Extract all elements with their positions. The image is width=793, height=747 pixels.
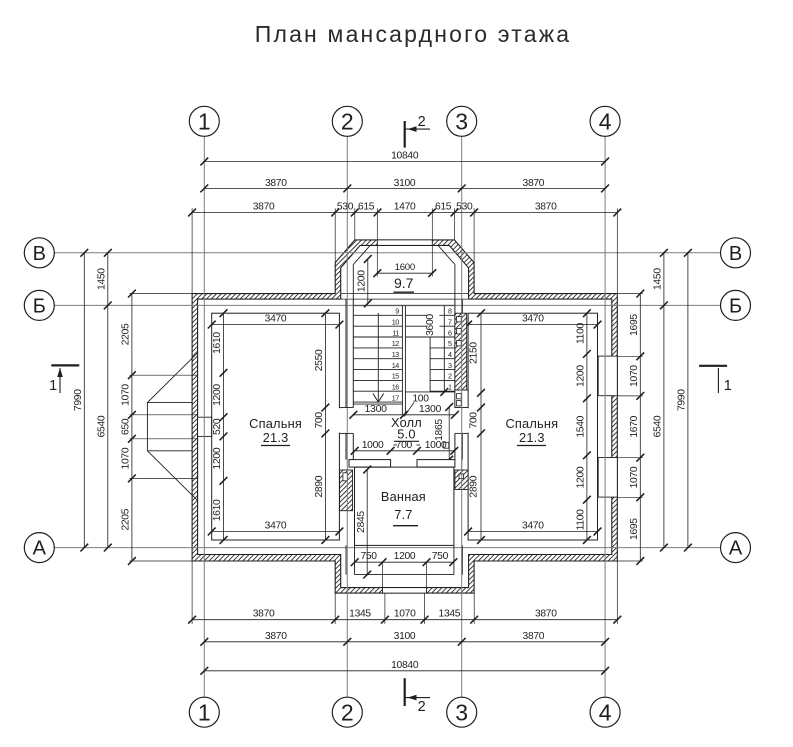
svg-text:100: 100 xyxy=(412,394,429,405)
svg-text:4: 4 xyxy=(599,699,612,725)
svg-text:1070: 1070 xyxy=(121,384,132,406)
svg-text:3870: 3870 xyxy=(535,609,557,620)
svg-text:А: А xyxy=(33,538,47,560)
svg-text:1670: 1670 xyxy=(629,415,640,437)
svg-text:3870: 3870 xyxy=(523,178,545,189)
svg-text:12: 12 xyxy=(392,339,399,348)
svg-text:Спальня: Спальня xyxy=(505,416,558,431)
svg-text:1345: 1345 xyxy=(439,609,461,620)
svg-text:1200: 1200 xyxy=(212,447,223,469)
svg-text:1300: 1300 xyxy=(419,403,442,415)
svg-text:2205: 2205 xyxy=(121,508,132,530)
svg-text:3470: 3470 xyxy=(522,314,544,325)
svg-text:1200: 1200 xyxy=(394,551,416,562)
svg-text:Спальня: Спальня xyxy=(249,416,302,431)
svg-text:8: 8 xyxy=(448,307,452,316)
svg-text:1200: 1200 xyxy=(576,466,587,488)
svg-text:2: 2 xyxy=(341,109,354,135)
svg-text:1695: 1695 xyxy=(629,518,640,540)
svg-text:9: 9 xyxy=(395,307,399,316)
svg-text:7990: 7990 xyxy=(677,389,688,411)
svg-text:2205: 2205 xyxy=(121,323,132,345)
svg-text:750: 750 xyxy=(360,551,377,562)
svg-text:1000: 1000 xyxy=(362,440,384,451)
svg-text:1100: 1100 xyxy=(576,509,587,531)
svg-text:1600: 1600 xyxy=(395,262,415,273)
svg-text:9.7: 9.7 xyxy=(394,275,414,291)
svg-text:700: 700 xyxy=(396,440,413,451)
svg-text:13: 13 xyxy=(392,350,399,359)
svg-text:615: 615 xyxy=(435,202,452,213)
svg-text:530: 530 xyxy=(456,202,473,213)
svg-text:2: 2 xyxy=(341,699,354,725)
svg-text:1200: 1200 xyxy=(212,384,223,406)
svg-text:2: 2 xyxy=(418,699,426,715)
svg-text:3100: 3100 xyxy=(394,631,416,642)
svg-text:3470: 3470 xyxy=(265,521,287,532)
svg-text:1345: 1345 xyxy=(349,609,371,620)
svg-text:1450: 1450 xyxy=(653,268,664,290)
svg-text:2890: 2890 xyxy=(469,475,480,497)
svg-text:10840: 10840 xyxy=(391,151,419,162)
svg-text:1070: 1070 xyxy=(394,609,416,620)
svg-text:3870: 3870 xyxy=(265,178,287,189)
svg-text:6540: 6540 xyxy=(96,415,107,437)
svg-text:3870: 3870 xyxy=(253,609,275,620)
svg-text:Ванная: Ванная xyxy=(381,489,426,504)
svg-text:3870: 3870 xyxy=(523,631,545,642)
svg-text:5: 5 xyxy=(448,339,452,348)
svg-text:2: 2 xyxy=(448,372,452,381)
svg-text:3870: 3870 xyxy=(535,202,557,213)
svg-text:2150: 2150 xyxy=(469,342,480,364)
svg-text:3600: 3600 xyxy=(425,314,436,336)
svg-text:1300: 1300 xyxy=(365,403,388,415)
svg-text:1610: 1610 xyxy=(212,499,223,521)
svg-text:1540: 1540 xyxy=(576,415,587,437)
svg-text:1470: 1470 xyxy=(394,202,416,213)
svg-text:2890: 2890 xyxy=(314,475,325,497)
svg-text:1200: 1200 xyxy=(356,270,367,292)
svg-text:3470: 3470 xyxy=(265,314,287,325)
svg-text:3: 3 xyxy=(455,699,468,725)
svg-text:1610: 1610 xyxy=(212,332,223,354)
svg-text:650: 650 xyxy=(121,418,132,435)
svg-text:3870: 3870 xyxy=(253,202,275,213)
svg-text:3870: 3870 xyxy=(265,631,287,642)
svg-text:1070: 1070 xyxy=(121,447,132,469)
svg-text:7.7: 7.7 xyxy=(394,507,412,522)
svg-text:3: 3 xyxy=(455,109,468,135)
svg-text:1100: 1100 xyxy=(576,322,587,344)
svg-text:2845: 2845 xyxy=(356,511,367,533)
svg-text:Б: Б xyxy=(33,296,46,318)
svg-text:1: 1 xyxy=(448,383,452,392)
svg-text:700: 700 xyxy=(314,412,325,429)
svg-text:7: 7 xyxy=(448,318,452,327)
svg-text:В: В xyxy=(729,243,742,265)
svg-text:1865: 1865 xyxy=(434,419,445,441)
svg-text:В: В xyxy=(33,243,46,265)
svg-text:А: А xyxy=(729,538,743,560)
svg-text:1070: 1070 xyxy=(629,365,640,387)
svg-text:6: 6 xyxy=(448,328,452,337)
svg-text:3100: 3100 xyxy=(394,178,416,189)
svg-text:15: 15 xyxy=(392,372,399,381)
svg-text:750: 750 xyxy=(432,551,449,562)
svg-text:700: 700 xyxy=(469,412,480,429)
svg-text:11: 11 xyxy=(392,328,399,337)
svg-text:14: 14 xyxy=(392,361,399,370)
svg-text:1070: 1070 xyxy=(629,466,640,488)
svg-text:1: 1 xyxy=(49,378,57,394)
svg-text:6540: 6540 xyxy=(653,415,664,437)
svg-text:17: 17 xyxy=(392,393,399,402)
svg-text:3: 3 xyxy=(448,361,452,370)
svg-text:7990: 7990 xyxy=(73,389,84,411)
svg-text:План мансардного этажа: План мансардного этажа xyxy=(255,21,572,47)
svg-text:1695: 1695 xyxy=(629,314,640,336)
svg-text:21.3: 21.3 xyxy=(519,430,545,445)
svg-text:2: 2 xyxy=(418,114,426,130)
svg-text:1200: 1200 xyxy=(576,365,587,387)
svg-text:520: 520 xyxy=(212,418,223,435)
svg-text:21.3: 21.3 xyxy=(263,430,289,445)
svg-text:530: 530 xyxy=(337,202,354,213)
svg-text:Б: Б xyxy=(729,296,742,318)
svg-text:10: 10 xyxy=(392,318,399,327)
svg-text:1450: 1450 xyxy=(96,268,107,290)
svg-text:3470: 3470 xyxy=(522,521,544,532)
svg-text:10840: 10840 xyxy=(391,660,419,671)
svg-text:1: 1 xyxy=(198,109,211,135)
svg-text:4: 4 xyxy=(448,350,452,359)
svg-text:1: 1 xyxy=(198,699,211,725)
svg-text:1: 1 xyxy=(724,378,732,394)
svg-text:16: 16 xyxy=(392,383,399,392)
svg-text:4: 4 xyxy=(599,109,612,135)
svg-text:2550: 2550 xyxy=(314,349,325,371)
svg-text:1000: 1000 xyxy=(425,440,447,451)
svg-text:615: 615 xyxy=(358,202,375,213)
